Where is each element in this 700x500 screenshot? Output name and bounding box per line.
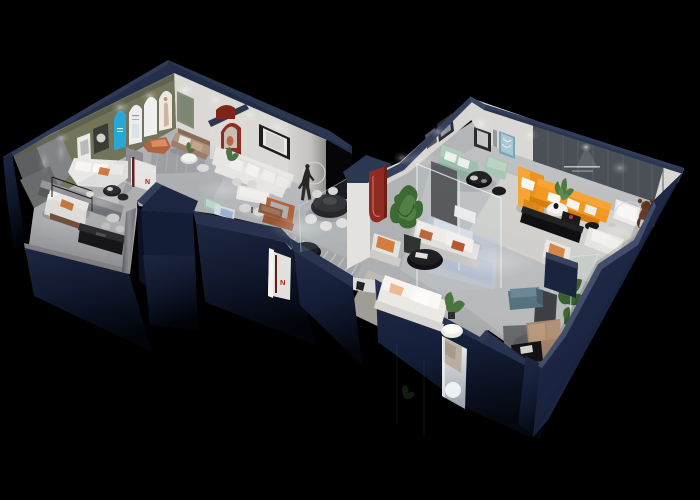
svg-text:N: N bbox=[280, 278, 285, 287]
